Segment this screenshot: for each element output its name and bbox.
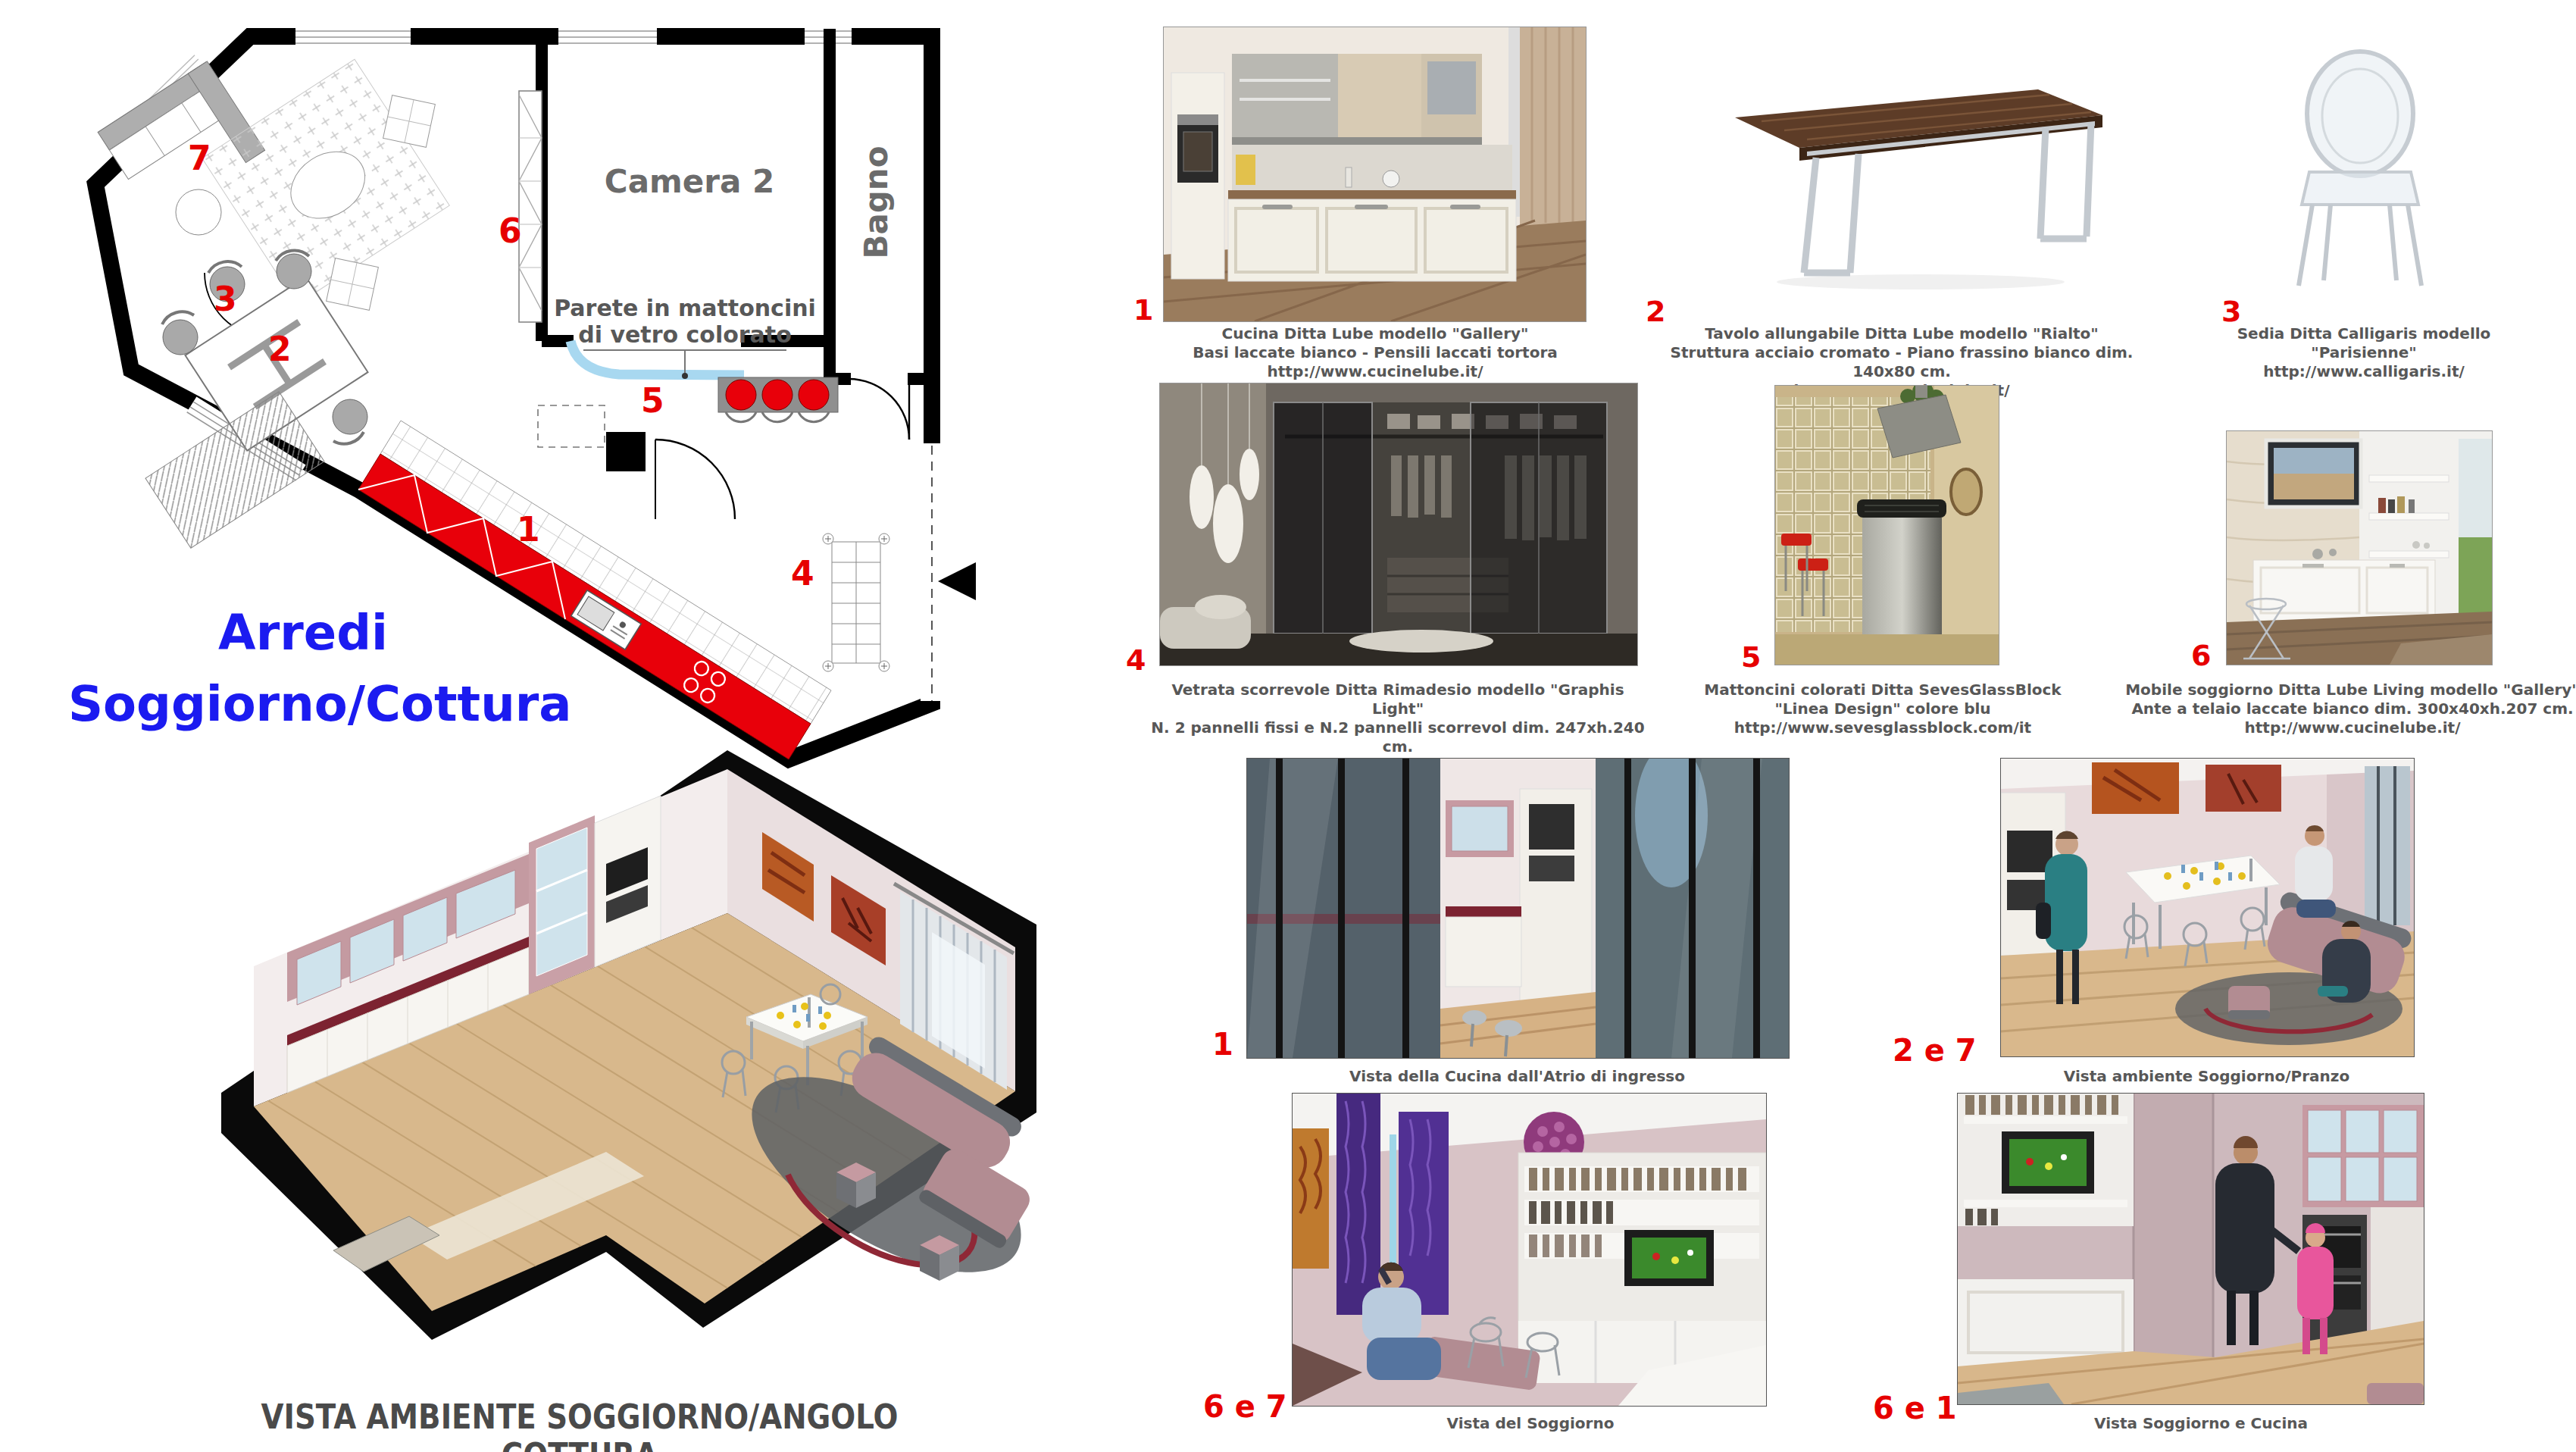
soggiorno-view-illustration [1293, 1094, 1766, 1406]
wall-note-line1: Parete in mattoncini [554, 295, 816, 321]
room-label-camera2: Camera 2 [605, 163, 774, 200]
plan-title: Arredi Soggiorno/Cottura [68, 597, 538, 740]
view-1-caption: Vista della Cucina dall'Atrio di ingress… [1250, 1067, 1784, 1086]
product-1-photo [1163, 27, 1587, 322]
product-2-photo [1693, 45, 2121, 296]
caption-line: Mobile soggiorno Ditta Lube Living model… [2118, 681, 2576, 699]
product-6-caption: Mobile soggiorno Ditta Lube Living model… [2118, 681, 2576, 737]
caption-line: Basi laccate bianco - Pensili laccati to… [1129, 343, 1621, 362]
caption-line: http://www.calligaris.it/ [2182, 362, 2546, 381]
caption-line: N. 2 pannelli fissi e N.2 pannelli scorr… [1148, 718, 1648, 756]
plan-title-line2: Soggiorno/Cottura [68, 668, 538, 740]
product-3-photo [2273, 42, 2447, 299]
product-5-number: 5 [1741, 643, 1761, 671]
entrance-arrow-icon [938, 562, 976, 600]
dining-view-illustration [2001, 759, 2414, 1056]
view-2-caption: Vista ambiente Soggiorno/Pranzo [1959, 1067, 2455, 1086]
product-6-photo [2226, 430, 2493, 665]
wardrobe-symbol [519, 91, 542, 322]
leader-dot [682, 373, 688, 379]
product-5-photo [1774, 385, 1999, 665]
svg-text:3: 3 [214, 280, 237, 318]
wallunit-photo-illustration [2227, 431, 2492, 665]
view-3-photo [1292, 1093, 1767, 1407]
product-6-number: 6 [2191, 641, 2211, 670]
caption-line: Vista Soggiorno e Cucina [1970, 1414, 2432, 1433]
view-4-number: 6 e 1 [1873, 1393, 1957, 1423]
caption-line: Mattoncini colorati Ditta SevesGlassBloc… [1659, 681, 2106, 699]
svg-text:4: 4 [791, 554, 814, 593]
glassblock-photo-illustration [1775, 386, 1999, 665]
caption-line: http://www.cucinelube.it/ [2118, 718, 2576, 737]
view-4-caption: Vista Soggiorno e Cucina [1970, 1414, 2432, 1433]
plan-title-line1: Arredi [68, 597, 538, 668]
caption-line: http://www.cucinelube.it/ [1129, 362, 1621, 381]
kitchen-through-glass-illustration [1247, 759, 1789, 1058]
product-4-photo [1159, 383, 1638, 666]
chair-photo-illustration [2273, 42, 2447, 299]
room-label-bagno: Bagno [858, 146, 895, 258]
product-1-number: 1 [1133, 296, 1153, 324]
product-5-caption: Mattoncini colorati Ditta SevesGlassBloc… [1659, 681, 2106, 737]
product-3-number: 3 [2221, 297, 2241, 326]
soggiorno-cucina-view-illustration [1958, 1094, 2424, 1404]
product-1-caption: Cucina Ditta Lube modello "Gallery" Basi… [1129, 324, 1621, 381]
view-2-photo [2000, 758, 2415, 1057]
svg-text:1: 1 [517, 510, 540, 549]
product-2-number: 2 [1646, 297, 1665, 326]
caption-line: http://www.sevesglassblock.com/it [1659, 718, 2106, 737]
iso-caption: VISTA AMBIENTE SOGGIORNO/ANGOLO COTTURA [210, 1397, 950, 1452]
table-photo-illustration [1693, 45, 2121, 296]
caption-line: "Linea Design" colore blu [1659, 699, 2106, 718]
view-1-number: 1 [1212, 1029, 1233, 1059]
svg-text:5: 5 [641, 381, 664, 420]
caption-line: Vista della Cucina dall'Atrio di ingress… [1250, 1067, 1784, 1086]
caption-line: Vetrata scorrevole Ditta Rimadesio model… [1148, 681, 1648, 718]
caption-line: Vista del Soggiorno [1303, 1414, 1758, 1433]
view-1-photo [1246, 758, 1790, 1059]
closet-photo-illustration [1160, 383, 1637, 665]
kitchen-photo-illustration [1164, 27, 1586, 321]
view-3-number: 6 e 7 [1203, 1391, 1287, 1422]
wall-note-line2: di vetro colorato [578, 321, 792, 348]
view-4-photo [1957, 1093, 2424, 1405]
iso-render [182, 750, 1061, 1375]
product-4-number: 4 [1126, 646, 1146, 674]
caption-line: Sedia Ditta Calligaris modello "Parisien… [2182, 324, 2546, 362]
presentation-board: Camera 2 Bagno Parete in mattoncini di v… [0, 0, 2576, 1452]
view-2-number: 2 e 7 [1893, 1035, 1977, 1066]
radiator-symbol [823, 534, 889, 671]
svg-text:6: 6 [499, 211, 522, 250]
caption-line: Vista ambiente Soggiorno/Pranzo [1959, 1067, 2455, 1086]
caption-line: Tavolo allungabile Ditta Lube modello "R… [1652, 324, 2152, 343]
caption-line: Cucina Ditta Lube modello "Gallery" [1129, 324, 1621, 343]
view-3-caption: Vista del Soggiorno [1303, 1414, 1758, 1433]
svg-text:2: 2 [268, 330, 292, 368]
svg-text:7: 7 [188, 139, 211, 177]
product-3-caption: Sedia Ditta Calligaris modello "Parisien… [2182, 324, 2546, 381]
caption-line: Ante a telaio laccate bianco dim. 300x40… [2118, 699, 2576, 718]
caption-line: Struttura acciaio cromato - Piano frassi… [1652, 343, 2152, 381]
